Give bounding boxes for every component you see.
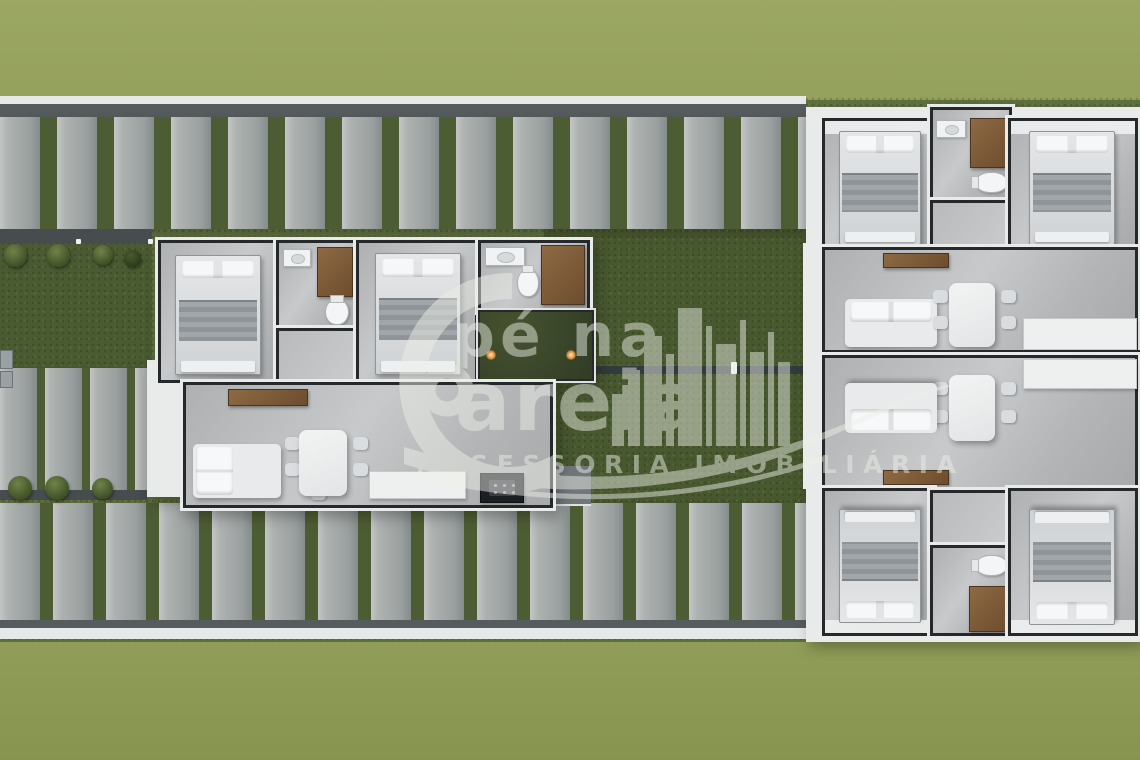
double-bed xyxy=(839,509,921,623)
courtyard-garden xyxy=(478,310,594,381)
dining-table xyxy=(949,283,995,347)
dining-chair xyxy=(1001,382,1016,395)
pergola-left xyxy=(0,368,147,500)
fence-walkway xyxy=(585,366,806,374)
pergola-top-slats xyxy=(0,117,806,229)
bed-blanket xyxy=(842,173,917,212)
kitchen-counter xyxy=(1023,318,1137,350)
fence-post xyxy=(731,362,737,374)
bed-blanket xyxy=(179,300,258,341)
bathroom xyxy=(276,240,358,330)
bed-blanket xyxy=(1033,542,1112,582)
pergola-bottom-white-edge xyxy=(0,628,810,639)
bedroom xyxy=(356,240,478,383)
pergola-left-slats xyxy=(0,368,147,490)
bed-foot-bench xyxy=(1035,512,1109,522)
toilet xyxy=(517,269,539,297)
shrub xyxy=(124,250,141,267)
bathroom xyxy=(930,107,1012,202)
bed-pillows xyxy=(846,601,915,618)
bathroom xyxy=(478,240,590,312)
garden-light xyxy=(566,350,576,360)
living-dining-kitchen xyxy=(822,355,1138,492)
bedroom xyxy=(822,118,934,251)
dining-chair xyxy=(285,437,300,450)
living-dining-kitchen xyxy=(822,247,1138,354)
sofa xyxy=(845,383,937,433)
dining-table xyxy=(949,375,995,441)
bathroom xyxy=(930,545,1012,636)
bush xyxy=(8,476,32,500)
bed-foot-bench xyxy=(845,232,915,242)
pergola-bottom-beam xyxy=(0,620,810,628)
sideboard xyxy=(228,389,308,406)
ac-unit xyxy=(0,371,13,388)
bedroom xyxy=(158,240,278,383)
dining-chair xyxy=(933,290,948,303)
sofa xyxy=(845,299,937,347)
bedroom xyxy=(822,488,934,636)
hallway xyxy=(930,490,1012,546)
bathroom-vanity xyxy=(283,249,311,267)
hallway xyxy=(930,200,1012,251)
dining-chair xyxy=(1001,290,1016,303)
bush xyxy=(4,244,27,267)
aerial-floorplan-render: pé na areia ASSESSORIA IMOBILIÁRIA xyxy=(0,0,1140,760)
bed-blanket xyxy=(1033,173,1112,212)
sideboard xyxy=(883,253,949,268)
double-bed xyxy=(1029,131,1115,245)
dining-chair xyxy=(1001,316,1016,329)
bed-foot-bench xyxy=(381,361,455,372)
apartment-right-duplex xyxy=(803,100,1140,642)
bathroom-vanity xyxy=(485,247,525,266)
bed-foot-bench xyxy=(181,361,255,372)
dining-chair xyxy=(353,463,368,476)
grass-top-strip xyxy=(0,0,1140,100)
bed-foot-bench xyxy=(845,512,915,522)
dining-chair xyxy=(353,437,368,450)
toilet xyxy=(975,172,1008,193)
grass-bottom-strip xyxy=(0,642,1140,760)
double-bed xyxy=(839,131,921,245)
ac-unit xyxy=(0,350,13,369)
toilet xyxy=(975,555,1008,576)
wood-cabinet xyxy=(317,247,353,297)
living-dining-kitchen xyxy=(183,382,553,508)
bed-pillows xyxy=(1036,136,1108,153)
wood-cabinet xyxy=(969,586,1009,632)
dining-table xyxy=(299,430,347,496)
bed-foot-bench xyxy=(1035,232,1109,242)
pergola-post xyxy=(76,239,81,244)
bed-pillows xyxy=(846,136,915,153)
wood-cabinet xyxy=(970,118,1009,168)
bed-pillows xyxy=(382,259,454,277)
bed-pillows xyxy=(1036,602,1108,619)
pergola-bottom xyxy=(0,503,810,642)
double-bed xyxy=(175,255,261,375)
bedroom xyxy=(1008,488,1138,636)
kitchen-counter xyxy=(1023,359,1137,389)
wood-shower-deck xyxy=(541,245,585,305)
pergola-top xyxy=(0,96,806,244)
apartment-center xyxy=(147,231,604,505)
bed-pillows xyxy=(182,261,254,279)
dining-chair xyxy=(1001,410,1016,423)
hallway xyxy=(276,328,358,383)
dining-chair xyxy=(285,463,300,476)
bush xyxy=(92,478,113,499)
bush xyxy=(45,476,69,500)
pergola-bottom-slats xyxy=(0,503,810,620)
bedroom xyxy=(1008,118,1138,251)
dining-chair xyxy=(933,316,948,329)
double-bed xyxy=(375,253,461,375)
garden-light xyxy=(486,350,496,360)
double-bed xyxy=(1029,509,1115,625)
bush xyxy=(47,244,70,267)
sideboard xyxy=(883,470,949,485)
cooktop-island xyxy=(480,473,524,503)
kitchen-counter xyxy=(369,471,466,499)
pergola-top-beam xyxy=(0,104,806,117)
bed-blanket xyxy=(842,542,917,581)
toilet xyxy=(325,299,349,325)
bed-blanket xyxy=(379,298,458,340)
bush xyxy=(93,245,113,265)
bathroom-vanity xyxy=(936,120,966,138)
pergola-top-white-edge xyxy=(0,96,806,104)
sofa xyxy=(193,444,281,498)
